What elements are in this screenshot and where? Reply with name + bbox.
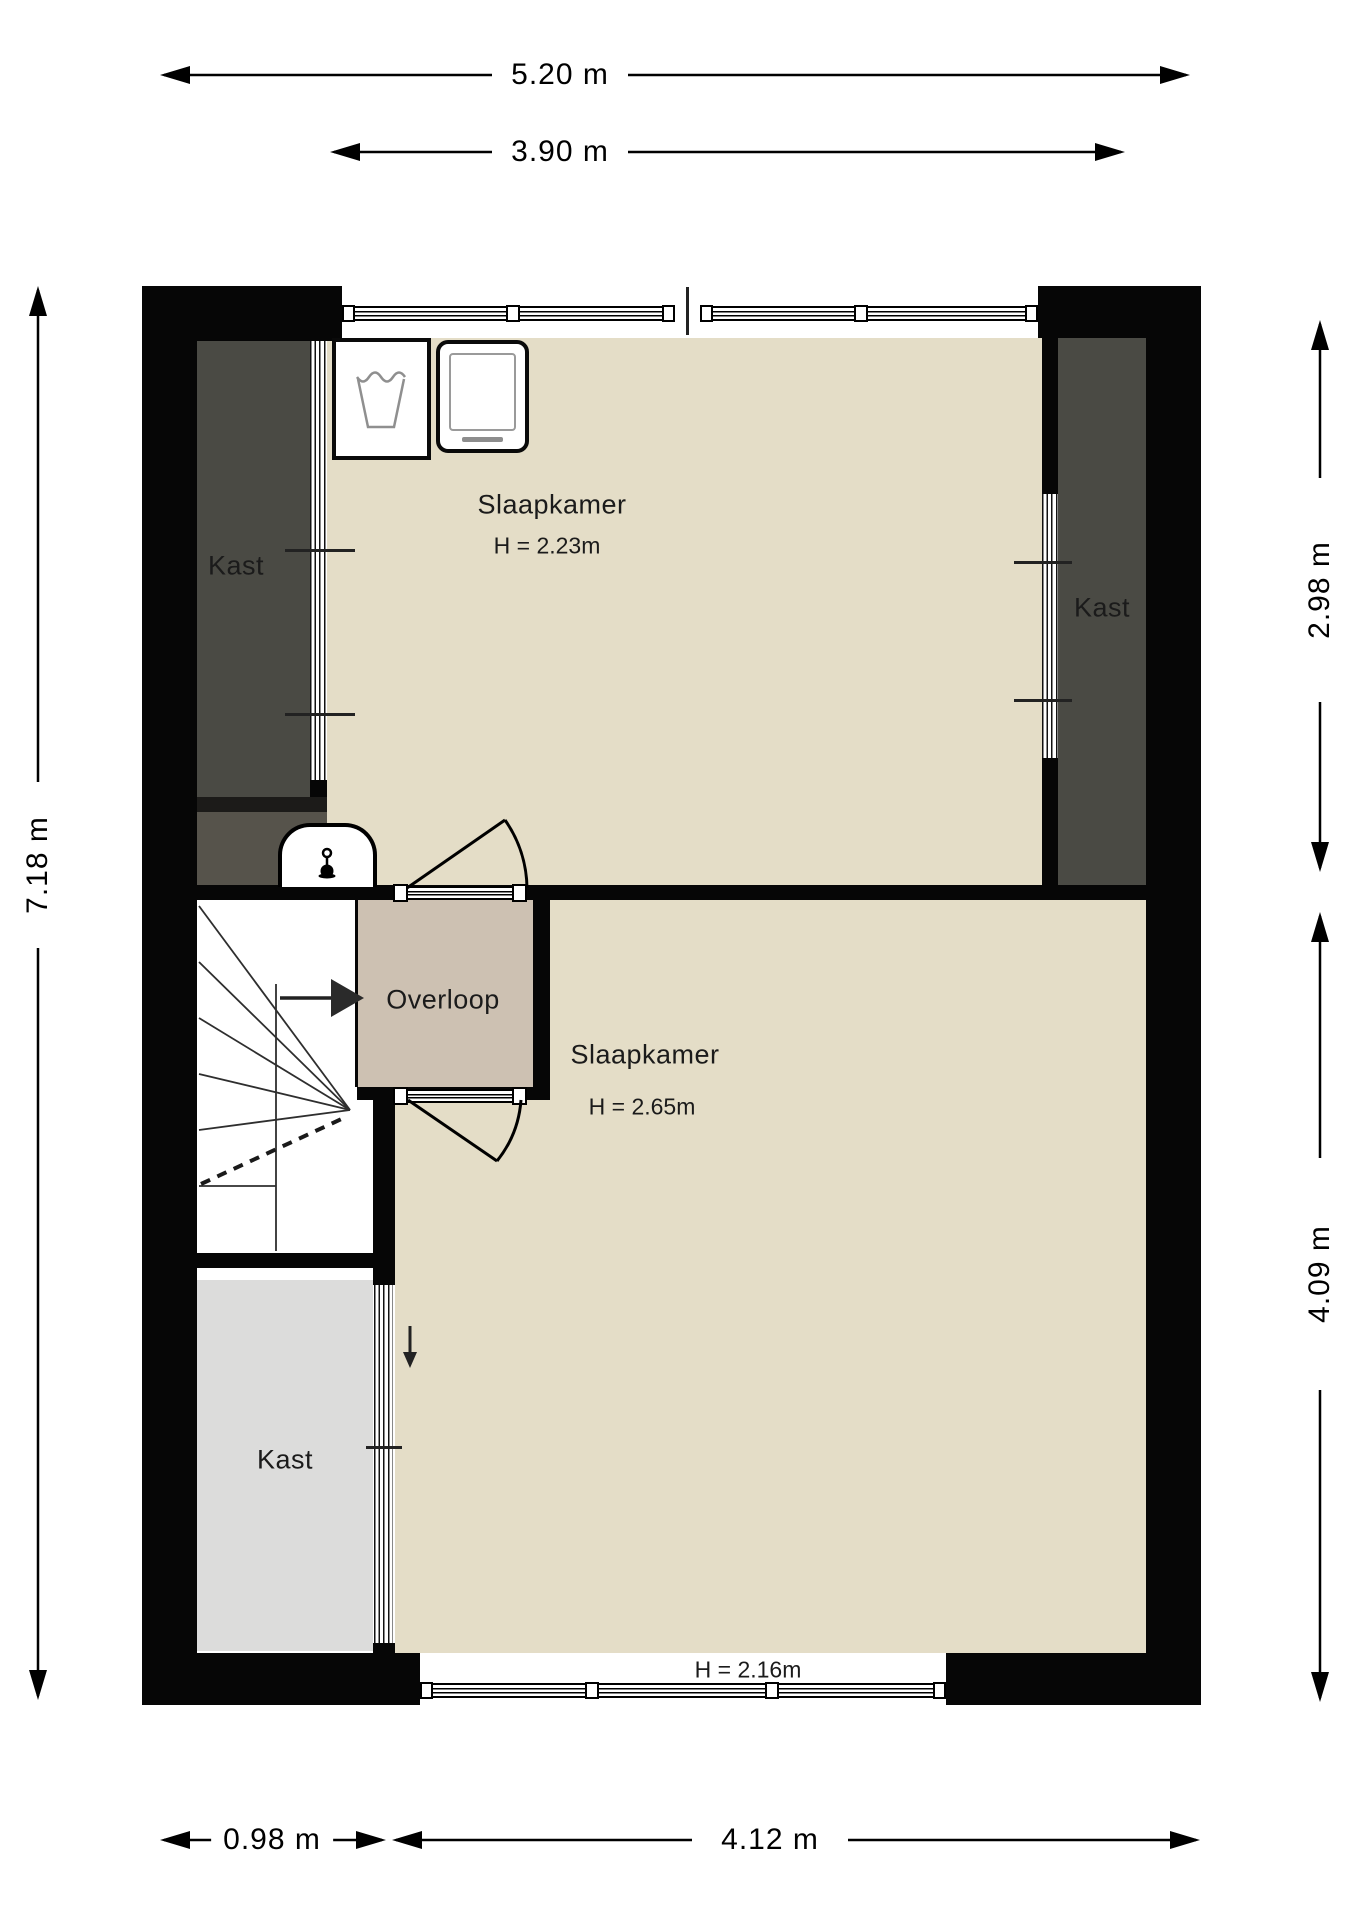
bedroom1-height-label: H = 2.23m [494, 533, 601, 560]
sliding-door-closet-bottom[interactable] [374, 1285, 393, 1643]
wall-stairs-right [373, 1087, 395, 1268]
door-tick [285, 549, 355, 552]
wall-right [1146, 286, 1201, 1705]
door-tick [1014, 699, 1072, 702]
door-tick [285, 713, 355, 716]
wall-landing-right [533, 900, 550, 1100]
window-cap [420, 1682, 433, 1699]
wall-bottom-left-block [142, 1653, 420, 1705]
window-cap [342, 305, 355, 322]
closet-bottom-left-label: Kast [257, 1445, 313, 1476]
window-mullion [765, 1682, 779, 1699]
window-cap [933, 1682, 946, 1699]
window-cap [700, 305, 713, 322]
sliding-door-closet-right[interactable] [1042, 494, 1058, 758]
landing-label: Overloop [386, 985, 500, 1016]
stairwell-floor [197, 900, 373, 1253]
bedroom2-height-label: H = 2.65m [589, 1094, 696, 1121]
window-top-2 [700, 306, 1038, 321]
dryer-vent [462, 437, 503, 442]
bedroom1-label: Slaapkamer [477, 490, 626, 521]
window-mullion [506, 305, 520, 322]
door-jamb [512, 884, 527, 902]
bedroom2-label: Slaapkamer [570, 1040, 719, 1071]
door-tick [366, 1446, 402, 1449]
dim-right-upper: 2.98 m [1303, 529, 1337, 651]
dryer [436, 340, 529, 453]
floorplan-page: { "floorplan": { "type": "floor-plan", "… [0, 0, 1358, 1920]
wall-bottom-right-block [946, 1653, 1201, 1705]
wall-closet-right-stub-top [1042, 338, 1058, 494]
window-bottom [420, 1683, 946, 1698]
wall-closet-left-door-stub [310, 780, 327, 797]
washing-machine [332, 338, 431, 460]
window-cap [662, 305, 675, 322]
dim-bottom-left: 0.98 m [211, 1823, 333, 1857]
wall-bedroom-divider [142, 885, 1146, 900]
bedroom2-window-height-label: H = 2.16m [695, 1657, 802, 1684]
dim-top-inner: 3.90 m [499, 135, 621, 169]
door-band-bedroom1[interactable] [407, 886, 513, 900]
wall-stairs-landing-line [355, 900, 358, 1087]
door-band-bedroom2[interactable] [407, 1089, 513, 1103]
dim-bottom-right: 4.12 m [709, 1823, 831, 1857]
closet-top-left-label: Kast [208, 551, 264, 582]
dim-right-lower: 4.09 m [1303, 1213, 1337, 1335]
window-cap [1025, 305, 1038, 322]
dim-left: 7.18 m [21, 804, 55, 926]
closet-right-label: Kast [1074, 593, 1130, 624]
window-mullion [585, 1682, 599, 1699]
wall-closet-bottom-stub-bottom [373, 1643, 395, 1653]
door-tick [1014, 561, 1072, 564]
wall-closet-right-stub-bottom [1042, 758, 1058, 885]
wall-left [142, 286, 197, 1705]
door-jamb [393, 1087, 408, 1105]
window-mullion [854, 305, 868, 322]
dryer-drum [449, 353, 516, 431]
bedroom1-floor [327, 338, 1042, 885]
wall-closet-top-left-bottom [197, 797, 327, 812]
dim-top-outer: 5.20 m [499, 58, 621, 92]
window-divider-tick [686, 287, 689, 335]
door-jamb [512, 1087, 527, 1105]
door-jamb [393, 884, 408, 902]
wall-closet-bottom-stub-top [373, 1253, 395, 1285]
boiler-niche [278, 823, 377, 887]
wall-top-left-block [142, 286, 342, 341]
wall-stairs-bottom [142, 1253, 373, 1268]
